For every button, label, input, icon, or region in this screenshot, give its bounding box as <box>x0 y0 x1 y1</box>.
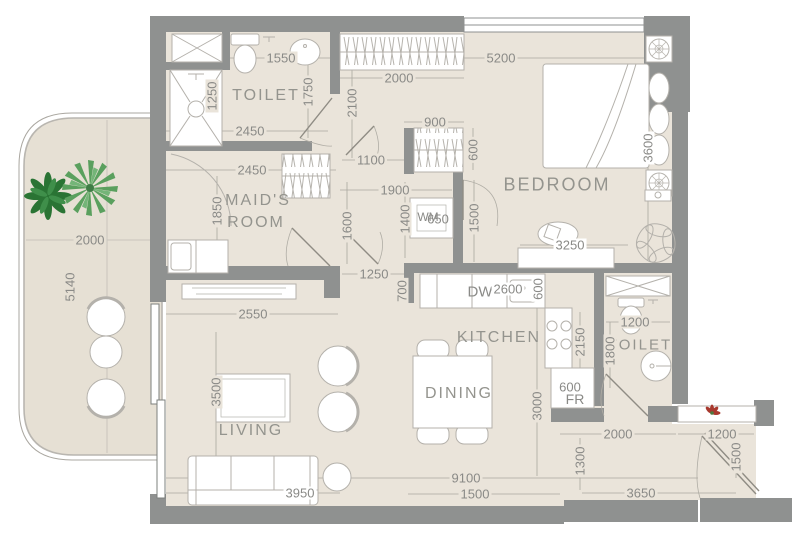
dimension-label: 9100 <box>450 472 483 485</box>
closet <box>414 128 463 172</box>
dimension-label: 1500 <box>468 202 481 235</box>
dimension-label: 1250 <box>358 268 391 281</box>
dimension-label: 5200 <box>485 52 518 65</box>
room-label-bedroom: BEDROOM <box>503 175 610 196</box>
room-label-living: LIVING <box>219 422 283 440</box>
balcony-sliding-door <box>151 304 165 498</box>
dimension-label: 1200 <box>706 428 739 441</box>
bedroom-window <box>464 18 644 32</box>
dimension-label: 1100 <box>355 154 387 167</box>
dimension-label: 5140 <box>64 271 77 304</box>
round-sink <box>641 351 671 381</box>
dimension-label: 1600 <box>341 210 354 243</box>
dimension-label: 1550 <box>265 52 298 65</box>
stove <box>545 308 572 368</box>
dimension-label: 600 <box>467 137 480 163</box>
dimension-label: 3000 <box>531 390 544 423</box>
dimension-label: 2450 <box>236 164 269 177</box>
wardrobe <box>340 34 464 70</box>
console-table <box>182 284 296 299</box>
balcony-armchair <box>87 298 125 336</box>
room-label-kitchen: KITCHEN <box>457 329 541 347</box>
bush-plant <box>24 172 72 220</box>
dimension-label: 3650 <box>625 487 658 500</box>
room-label-maids-line1: MAID'S <box>225 192 291 210</box>
armchair <box>318 392 358 432</box>
side-table <box>323 463 351 491</box>
dimension-label: 1800 <box>604 335 617 368</box>
dishwasher-label: DW <box>468 284 493 301</box>
dimension-label: 1400 <box>399 203 412 236</box>
nightstand <box>646 36 672 62</box>
dimension-label: 3600 <box>642 132 655 165</box>
dimension-label: 1250 <box>206 80 219 113</box>
dimension-label: 2000 <box>383 72 416 85</box>
dimension-label: 1500 <box>730 441 743 474</box>
dimension-label: 1200 <box>619 316 652 329</box>
balcony-armchair <box>87 379 125 417</box>
dimension-label: 2150 <box>574 326 587 359</box>
maid-bed <box>168 240 228 273</box>
dimension-label: 2100 <box>346 87 359 120</box>
coffee-table <box>216 374 290 422</box>
dimension-label: 600 <box>532 276 545 302</box>
dimension-label: 2600 <box>492 283 525 296</box>
dimension-label: 650 <box>427 213 449 226</box>
room-label-dining: DINING <box>425 385 493 403</box>
dimension-label: 1300 <box>574 445 587 478</box>
room-label-toilet-top: TOILET <box>232 87 300 105</box>
armchair <box>318 346 358 386</box>
dimension-label: 1500 <box>459 488 492 501</box>
dimension-label: 3500 <box>210 376 223 409</box>
dimension-label: 1750 <box>302 76 315 109</box>
dimension-label: 2550 <box>237 308 270 321</box>
floor-plan: TOILET MAID'S ROOM BEDROOM KITCHEN DININ… <box>0 0 800 544</box>
room-label-toilet-right: TOILET <box>608 337 672 354</box>
dimension-label: 700 <box>396 278 409 304</box>
room-label-maids-line2: ROOM <box>227 214 285 232</box>
dimension-label: 600 <box>557 381 583 394</box>
dimension-label: 2000 <box>602 428 635 441</box>
dimension-label: 1850 <box>211 195 224 228</box>
dimension-label: 900 <box>422 116 448 129</box>
dimension-label: 2450 <box>234 125 267 138</box>
balcony-table <box>90 336 122 368</box>
linen-closet <box>606 276 670 296</box>
dimension-label: 2000 <box>74 234 107 247</box>
wall-tv <box>645 190 671 201</box>
linen-closet <box>172 34 222 62</box>
dimension-label: 1900 <box>379 184 412 197</box>
dimension-label: 3950 <box>284 487 317 500</box>
dimension-label: 3250 <box>554 239 587 252</box>
